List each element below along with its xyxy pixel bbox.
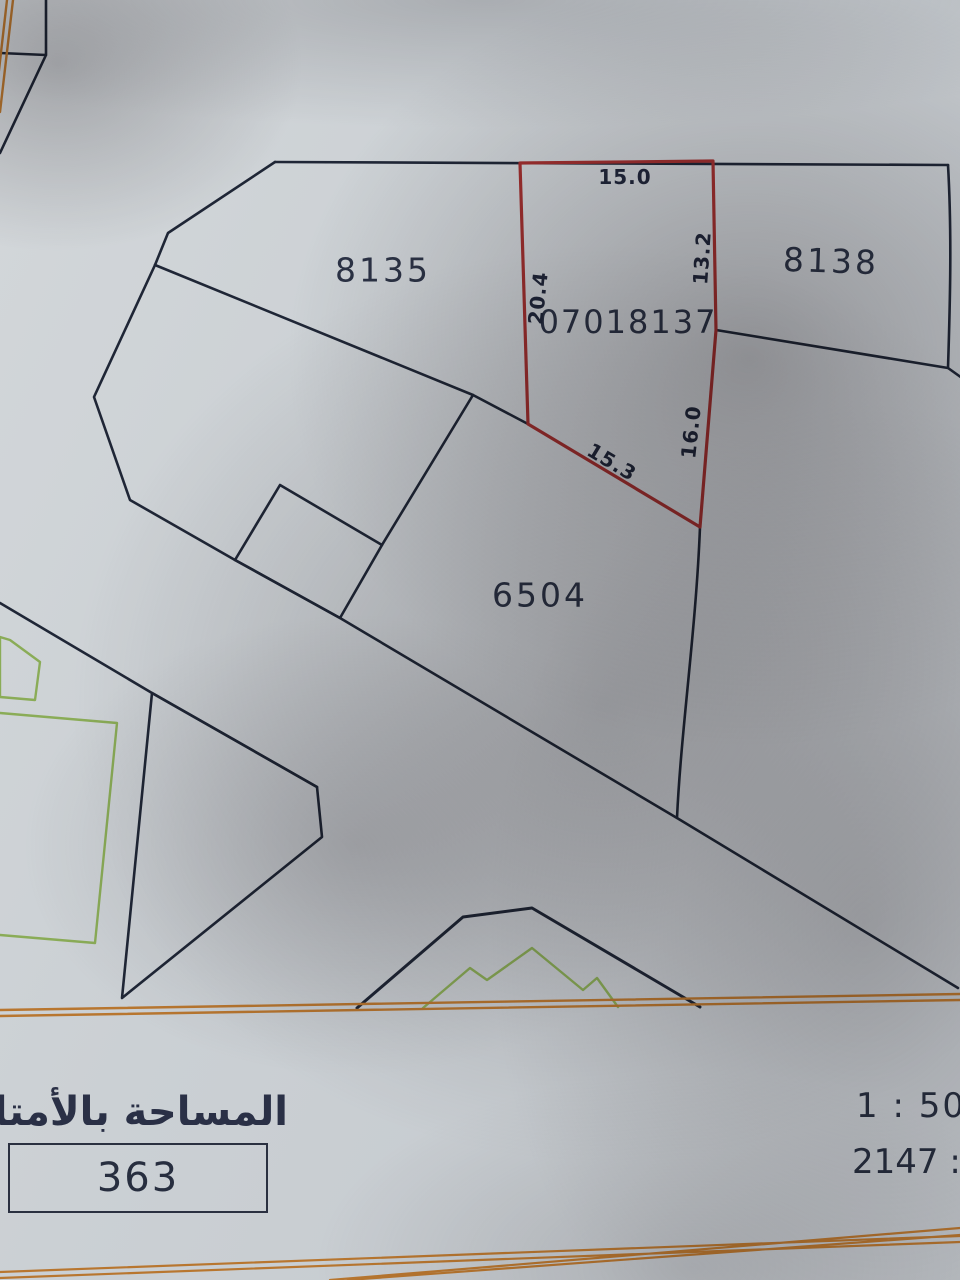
parcel-8135-nw-edge <box>155 162 275 265</box>
area-value: 363 <box>97 1155 179 1201</box>
parcel-label-6504: 6504 <box>492 576 588 615</box>
red-parcel-number: 07018137 <box>539 303 718 341</box>
topleft-parcel-boundary <box>0 0 46 153</box>
boundary-6504-east <box>677 527 700 818</box>
parcel-label-8138: 8138 <box>782 240 879 282</box>
boundary-6504-southwest <box>235 560 958 988</box>
lowerleft-polygon <box>122 693 322 998</box>
road-orange-double-line <box>0 994 960 1016</box>
scale-label: 1 : 50 <box>856 1086 960 1126</box>
green-quad <box>0 713 117 943</box>
reference-separator: : <box>939 1142 960 1182</box>
area-label-arabic: المساحة بالأمتار المربعة <box>0 1082 288 1146</box>
parcel-label-8135: 8135 <box>335 251 431 290</box>
boundary-west-chain <box>94 265 235 560</box>
boundary-8138-south <box>716 330 960 378</box>
green-pentagon <box>0 637 40 700</box>
area-value-box: 363 <box>8 1143 268 1213</box>
reference-number: 2147 : يـ <box>852 1142 960 1182</box>
dim-right-upper-13-2: 13.2 <box>688 231 716 286</box>
bottom-road-crossing <box>0 1228 960 1280</box>
small-rect-plot <box>235 485 382 618</box>
boundary-8138-east <box>948 165 950 368</box>
topleft-road-line <box>0 0 13 112</box>
dim-top-15-0: 15.0 <box>598 165 651 189</box>
reference-value: 2147 <box>852 1142 939 1182</box>
road-trapezoid-shape <box>357 908 700 1008</box>
boundary-spur <box>382 395 473 545</box>
survey-map-photo: 8135 8138 07018137 6504 15.0 13.2 20.4 1… <box>0 0 960 1280</box>
